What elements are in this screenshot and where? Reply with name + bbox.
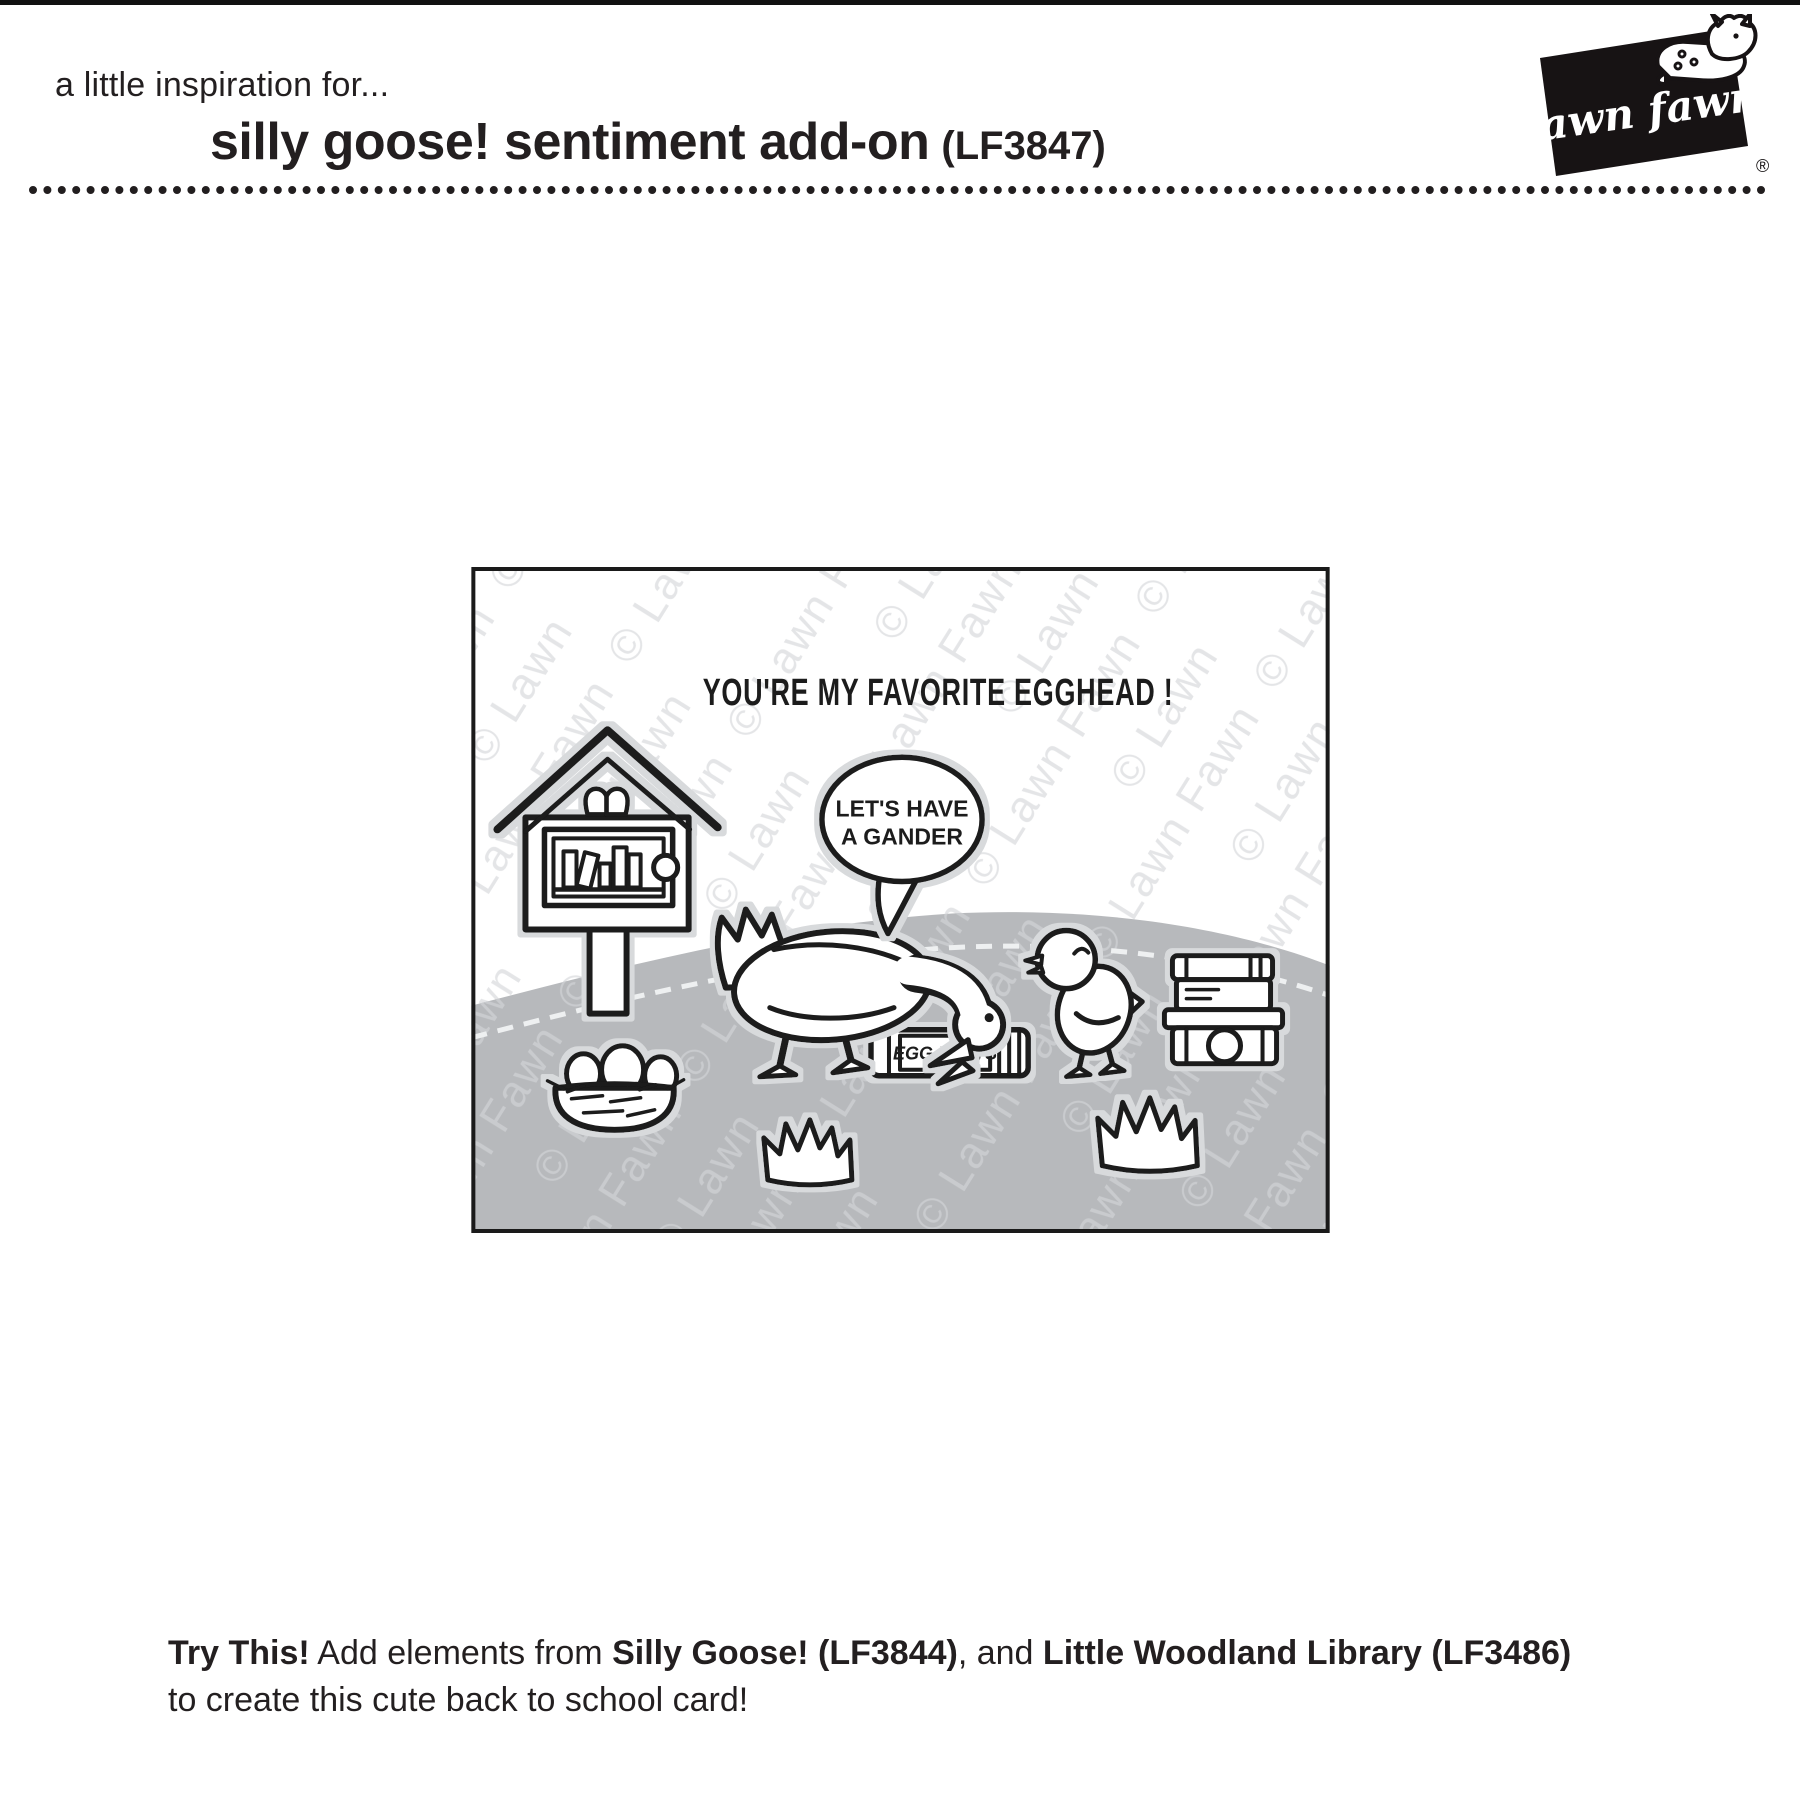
brand-logo: lawn fawn ® [1532,14,1782,190]
product-title-row: silly goose! sentiment add-on(LF3847) [210,112,1106,172]
intro-line: a little inspiration for... [55,66,389,105]
book-stack-sticker [1164,956,1282,1064]
footer-text: Add elements from [310,1634,612,1672]
gosling-head [1037,931,1095,989]
footer-product-2: Little Woodland Library (LF3486) [1043,1634,1571,1672]
library-post [590,928,627,1014]
footer-try-this: Try This! [168,1634,310,1672]
footer-line1: Try This! Add elements from Silly Goose!… [168,1630,1571,1677]
speech-bubble-line1: LET'S HAVE [836,795,969,821]
stacked-book [1176,980,1270,1010]
open-book-icon [585,789,627,815]
product-code: (LF3847) [941,124,1106,168]
speech-bubble-line2: A GANDER [841,823,963,849]
page: { "header": { "intro": "a little inspira… [0,0,1800,1800]
product-title: silly goose! sentiment add-on [210,113,929,171]
registered-mark: ® [1756,156,1769,176]
sentiment-text: YOU'RE MY FAVORITE EGGHEAD ! [703,672,1174,714]
footer-product-1: Silly Goose! (LF3844) [612,1634,958,1672]
footer-note: Try This! Add elements from Silly Goose!… [168,1630,1571,1724]
library-door-knob [654,855,678,879]
footer-text: , and [958,1634,1043,1672]
footer-line2: to create this cute back to school card! [168,1677,1571,1724]
goose-eye [985,1013,994,1022]
book-circle-design [1208,1030,1240,1062]
inspiration-card: © Lawn Fawn © Lawn Fawn © Lawn Fawn © La… [471,567,1330,1233]
page-top-edge [0,0,1800,5]
dotted-divider [28,182,1772,198]
stacked-book [1164,1010,1282,1028]
